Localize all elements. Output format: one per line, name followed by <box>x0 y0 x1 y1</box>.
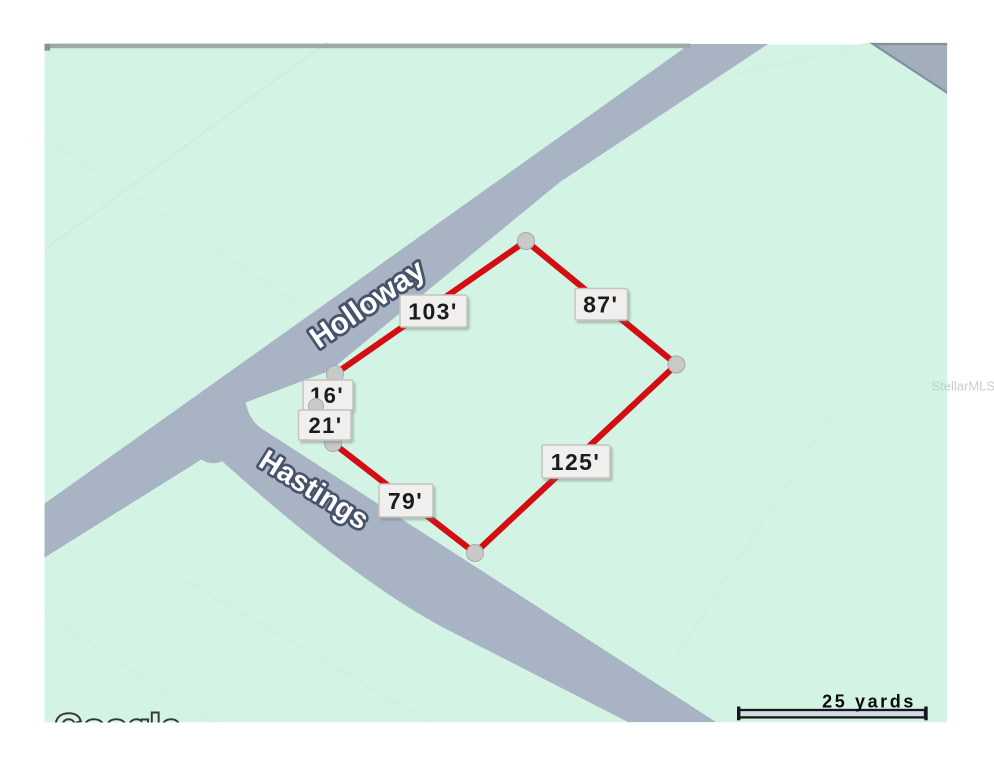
svg-text:125': 125' <box>551 449 600 475</box>
svg-text:25 yards: 25 yards <box>822 692 916 712</box>
svg-text:103': 103' <box>408 298 457 324</box>
svg-text:StellarMLS: StellarMLS <box>932 379 994 394</box>
svg-text:21': 21' <box>309 413 343 438</box>
svg-text:79': 79' <box>388 488 423 514</box>
svg-text:87': 87' <box>583 292 618 318</box>
